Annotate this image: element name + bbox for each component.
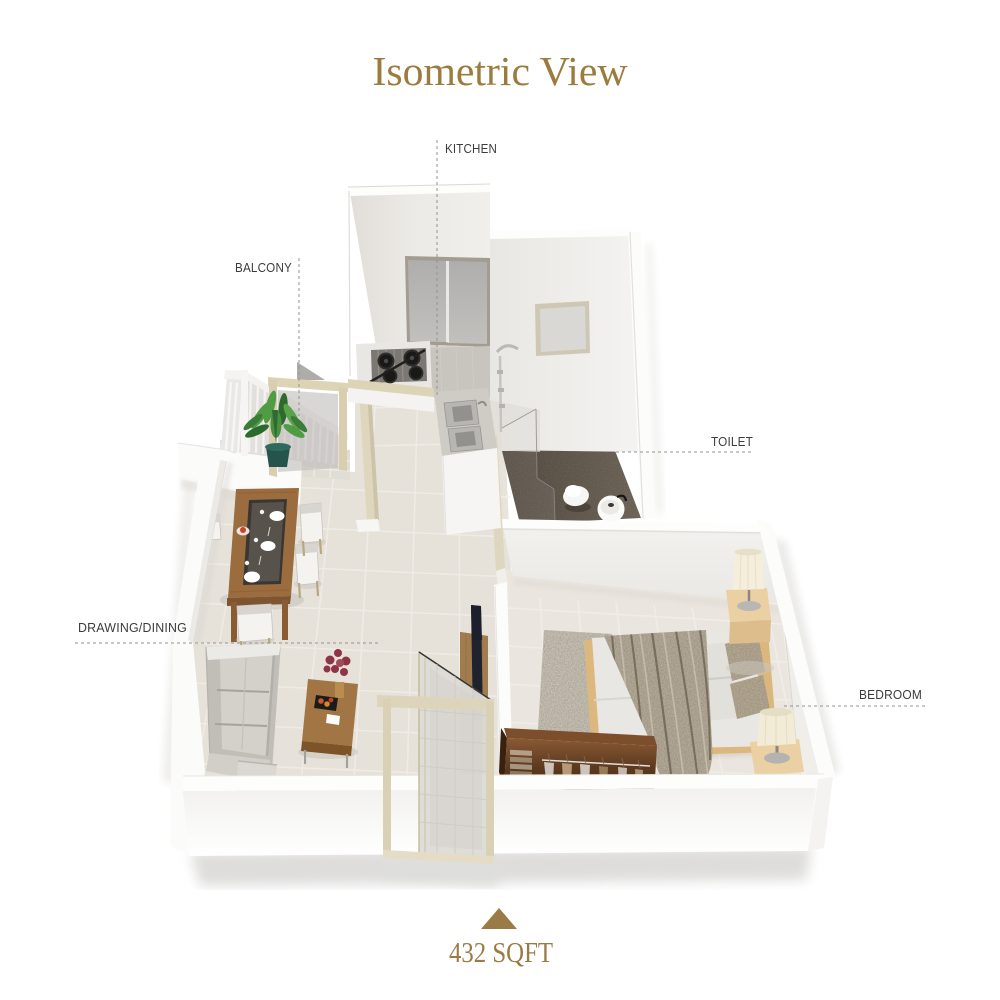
svg-text:KITCHEN: KITCHEN: [445, 141, 497, 156]
svg-text:Isometric View: Isometric View: [373, 48, 628, 94]
svg-text:BEDROOM: BEDROOM: [859, 687, 922, 702]
svg-text:432 SQFT: 432 SQFT: [449, 938, 553, 969]
svg-text:TOILET: TOILET: [711, 434, 753, 449]
svg-text:BALCONY: BALCONY: [235, 260, 292, 275]
svg-text:DRAWING/DINING: DRAWING/DINING: [78, 620, 187, 635]
